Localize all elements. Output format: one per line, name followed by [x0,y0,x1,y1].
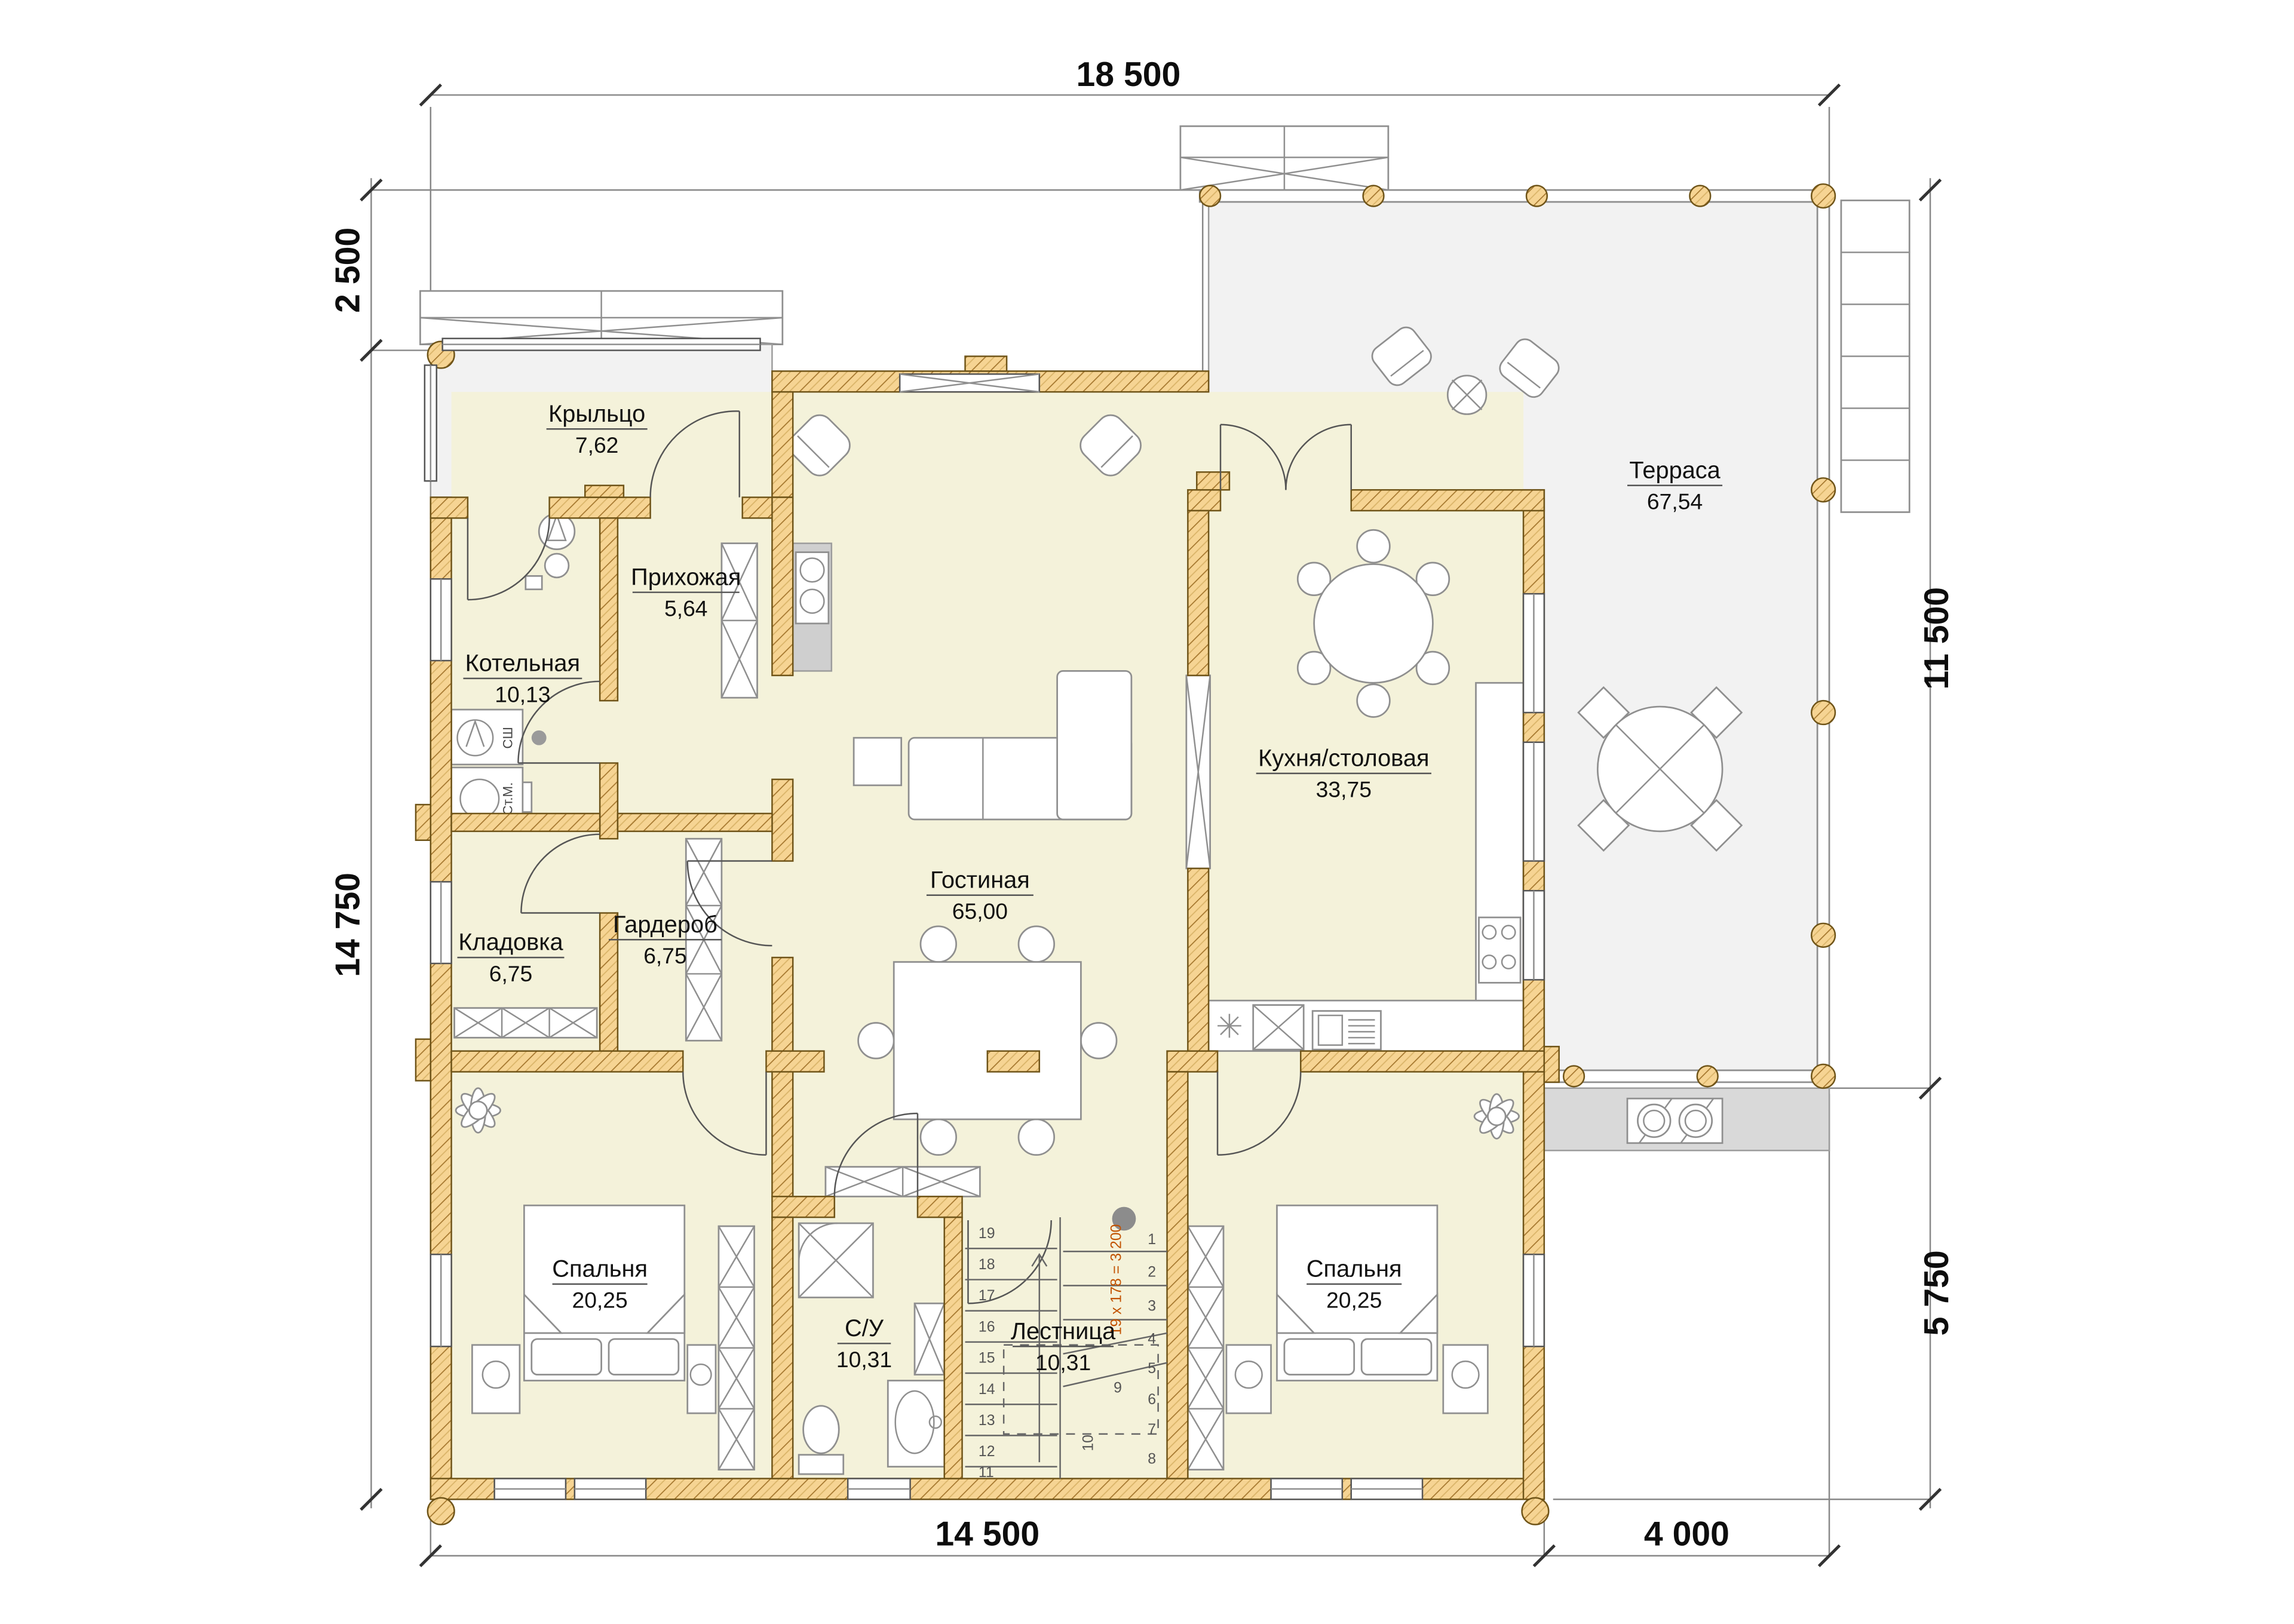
wall-living-left-upper [772,392,793,497]
svg-text:3: 3 [1148,1298,1156,1315]
column-icon [1811,478,1835,502]
fireplace-chimney [793,544,832,671]
plant-icon [456,1088,501,1133]
window [431,1254,452,1346]
wall-kitchen-top [1351,490,1544,511]
wall-bathroom-top [918,1196,962,1217]
log-bump [416,805,431,840]
svg-text:16: 16 [979,1319,995,1335]
column-icon [1200,186,1220,207]
svg-text:6: 6 [1148,1392,1156,1408]
svg-text:Кухня/столовая: Кухня/столовая [1258,745,1429,771]
svg-text:17: 17 [979,1288,995,1304]
svg-text:Спальня: Спальня [552,1255,648,1282]
svg-text:6,75: 6,75 [489,961,533,986]
terrace-railing-bottom [1544,1070,1829,1082]
svg-text:7,62: 7,62 [575,432,619,458]
wall-corridor [766,1051,824,1072]
washer-label: Ст.М. [500,782,515,815]
column-icon [1363,186,1384,207]
window [1271,1478,1342,1499]
porch-roof-canopy [420,291,782,344]
oven-icon [1312,1011,1381,1050]
wall-corridor [987,1051,1039,1072]
floor-plan-drawing: 18 500 2 500 14 750 11 500 5 750 14 500 … [0,0,2294,1624]
svg-text:Котельная: Котельная [465,650,580,676]
nightstand [472,1345,520,1413]
porch-window [443,339,760,351]
svg-text:2: 2 [1148,1264,1156,1280]
column-icon [1697,1066,1718,1087]
log-bump [416,1039,431,1081]
hall-closet [826,1167,980,1197]
bbq-burner-icon [1637,1104,1670,1137]
wall-hallway-right [772,779,793,861]
svg-text:С/У: С/У [845,1315,884,1341]
dim-right-lower: 5 750 [1918,1250,1956,1336]
floor-plan-page: 18 500 2 500 14 750 11 500 5 750 14 500 … [0,0,2294,1624]
svg-text:14: 14 [979,1382,995,1398]
column-icon [1563,1066,1584,1087]
column-icon [1811,184,1835,208]
bedroom-right-closet [1188,1226,1223,1470]
wall-living-kitchen [1188,511,1209,676]
dim-left-upper: 2 500 [329,228,367,313]
svg-text:65,00: 65,00 [952,898,1008,923]
column-icon [1811,923,1835,947]
parasol-table [1578,687,1741,851]
svg-text:10,31: 10,31 [1035,1350,1091,1375]
wall-bathroom-top [772,1196,834,1217]
bbq-counter [1544,1088,1829,1150]
wall-corridor [452,1051,683,1072]
dim-right-upper: 11 500 [1918,587,1956,690]
svg-text:13: 13 [979,1413,995,1429]
toilet-icon [799,1406,844,1474]
wall-hallway-right [772,498,793,676]
svg-text:8: 8 [1148,1451,1156,1468]
svg-text:Гостиная: Гостиная [930,867,1030,893]
wall-living-kitchen [1188,868,1209,1051]
svg-text:19: 19 [979,1226,995,1242]
drying-cabinet: СШ [452,710,523,765]
svg-text:12: 12 [979,1444,995,1460]
wall-hallway-wardrobe [618,813,772,831]
svg-text:7: 7 [1148,1422,1156,1438]
dryer-label: СШ [500,727,515,749]
svg-text:Лестница: Лестница [1011,1318,1116,1344]
wall-corridor [1301,1051,1544,1072]
svg-text:Крыльцо: Крыльцо [548,401,645,427]
dim-bottom-left: 14 500 [935,1515,1039,1553]
svg-text:Кладовка: Кладовка [458,929,563,956]
log-post-icon [428,1498,455,1525]
log-bump [1197,472,1229,490]
storage-closet [455,1008,597,1038]
terrace-railing-right [1817,190,1829,1082]
svg-text:1: 1 [1148,1232,1156,1248]
window [431,579,452,661]
svg-text:9: 9 [1114,1380,1122,1396]
svg-text:5: 5 [1148,1361,1156,1377]
svg-text:5,64: 5,64 [664,595,708,621]
log-bump [1544,1046,1559,1082]
shower-icon [799,1223,873,1297]
wall-porch-bottom [550,498,651,518]
column-icon [1811,701,1835,724]
window [431,882,452,963]
dim-bottom-right: 4 000 [1644,1515,1729,1553]
dim-left-lower: 14 750 [329,873,367,977]
wall-wardrobe-right [772,957,793,1196]
sink-icon [1217,1014,1241,1038]
wall-bedroom-right-left [1167,1072,1188,1478]
window [495,1478,566,1499]
svg-text:10,31: 10,31 [836,1347,892,1372]
svg-text:15: 15 [979,1350,995,1367]
terrace-pergola [1180,126,1388,190]
window [1523,891,1544,980]
nightstand [1226,1345,1271,1413]
window [1351,1478,1422,1499]
wall-boiler-right [600,763,618,839]
stair-number-mid: 10 [1080,1435,1096,1451]
svg-text:33,75: 33,75 [1316,777,1372,802]
wall-boiler-storage [452,813,600,831]
svg-text:Гардероб: Гардероб [613,911,717,938]
bbq-burner-icon [1679,1104,1712,1137]
bathroom-cabinet [915,1303,944,1374]
svg-text:18: 18 [979,1257,995,1273]
window [575,1478,646,1499]
nightstand [1443,1345,1488,1413]
svg-text:10,13: 10,13 [495,682,550,707]
exterior-stairs-block [1841,201,1909,512]
column-icon [1526,186,1547,207]
svg-text:67,54: 67,54 [1647,489,1703,514]
svg-text:Спальня: Спальня [1307,1255,1402,1282]
wall-bathroom-left [772,1217,793,1478]
svg-text:4: 4 [1148,1331,1156,1347]
boiler-icon [539,514,575,549]
living-top-window [900,374,1039,392]
dim-top: 18 500 [1077,56,1181,94]
wall-boiler-right [600,518,618,701]
svg-text:20,25: 20,25 [1326,1288,1382,1313]
log-bump [585,486,624,498]
window [848,1478,910,1499]
wall-porch-bottom [431,498,468,518]
svg-text:11: 11 [979,1465,994,1481]
terrace-railing-top [1200,190,1829,202]
column-icon [1811,1064,1835,1088]
floor-drain-icon [532,730,547,745]
svg-text:Терраса: Терраса [1629,457,1720,483]
svg-text:Прихожая: Прихожая [631,564,741,590]
wall-corridor [1167,1051,1218,1072]
column-icon [1689,186,1710,207]
svg-text:6,75: 6,75 [643,943,687,968]
bedroom-left-closet [719,1226,755,1470]
porch-window [425,365,437,481]
cooktop-icon [1479,917,1520,983]
wall-kitchen-top [1188,490,1220,511]
log-post-icon [1522,1498,1549,1525]
svg-text:20,25: 20,25 [572,1288,627,1313]
window [1523,594,1544,713]
washbasin-icon [888,1380,944,1466]
window [1523,1254,1544,1346]
log-bump [965,357,1007,372]
plant-icon [1474,1094,1519,1139]
window [1523,742,1544,861]
wall-stairs-left [944,1217,962,1478]
